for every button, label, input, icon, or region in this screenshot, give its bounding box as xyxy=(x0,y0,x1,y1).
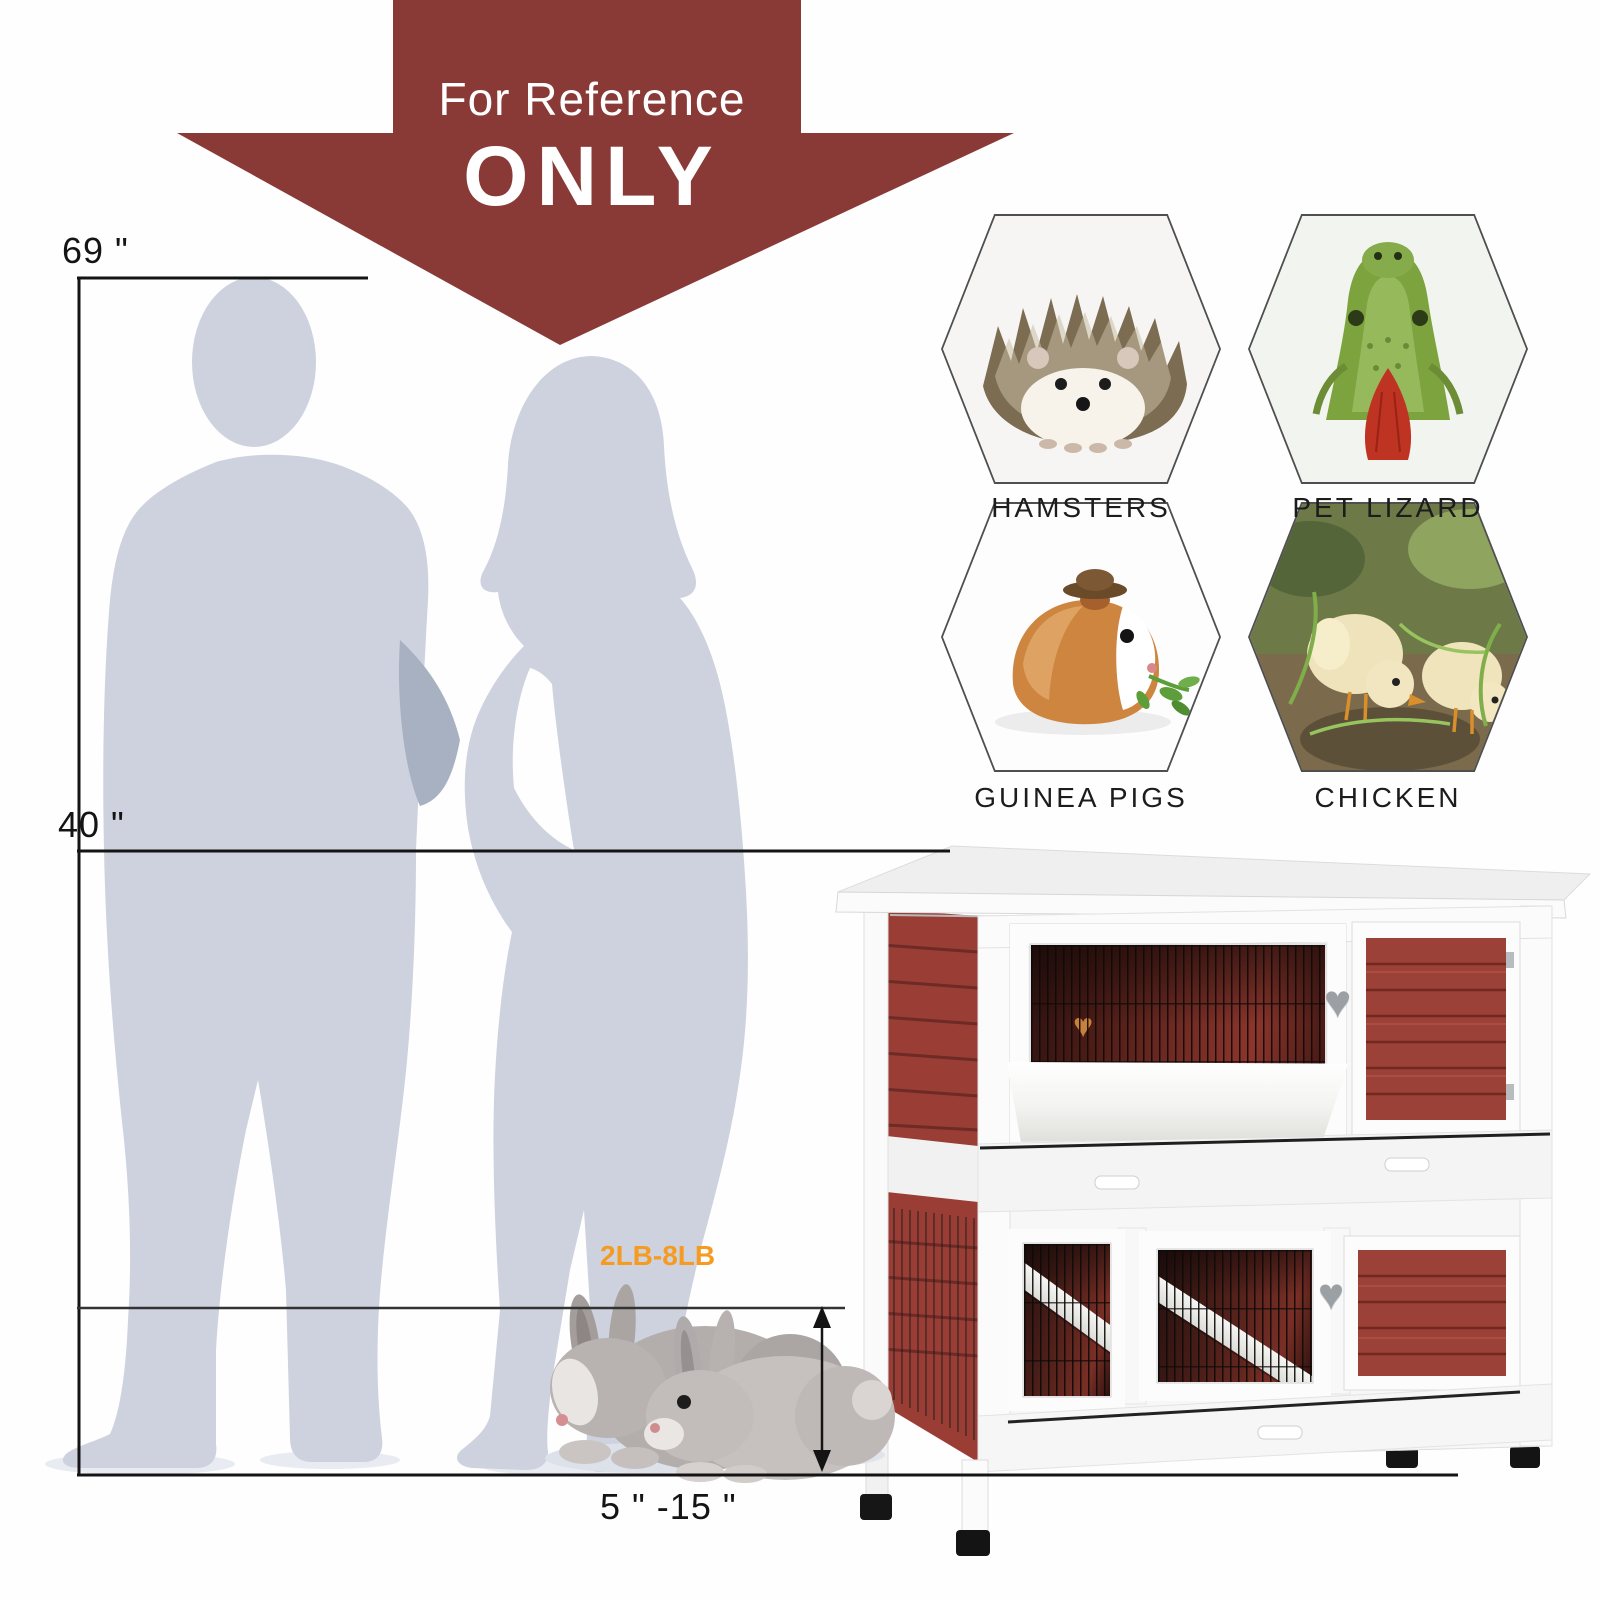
upper-right-door xyxy=(1352,922,1520,1136)
upper-heart-handle-icon: ♥ xyxy=(1324,974,1351,1028)
hex-guinea-pigs xyxy=(941,502,1221,772)
lower-heart-handle-icon: ♥ xyxy=(1318,1270,1344,1320)
feeding-trough xyxy=(1000,1062,1348,1142)
label-pet-lizard: PET LIZARD xyxy=(1292,492,1483,524)
lower-center-cage-interior xyxy=(1158,1250,1312,1382)
label-hamsters: HAMSTERS xyxy=(991,492,1171,524)
hex-pet-lizard xyxy=(1248,214,1528,484)
hedgehog-image xyxy=(943,216,1219,482)
reference-size-infographic: For Reference ONLY 69 " 40 " 2LB-8LB 5 "… xyxy=(0,0,1600,1600)
man-silhouette xyxy=(63,277,429,1468)
rabbit-height-label: 5 " -15 " xyxy=(600,1486,737,1528)
lower-center-mesh xyxy=(1158,1250,1312,1382)
banner-line-1: For Reference xyxy=(438,72,745,126)
rabbit-weight-label: 2LB-8LB xyxy=(600,1240,715,1272)
hutch-height-label: 40 " xyxy=(58,804,125,846)
banner-line-2: ONLY xyxy=(463,128,721,225)
arrowhead-up xyxy=(813,1306,831,1328)
lower-left-mesh xyxy=(1024,1244,1110,1396)
guinea-pig-image xyxy=(943,504,1219,770)
person-height-label: 69 " xyxy=(62,230,129,272)
lizard-image xyxy=(1250,216,1526,482)
chicks-image xyxy=(1250,504,1526,770)
hutch-left-side xyxy=(864,906,978,1462)
hex-hamsters xyxy=(941,214,1221,484)
lower-left-cage-interior xyxy=(1024,1244,1110,1396)
label-chicken: CHICKEN xyxy=(1314,782,1461,814)
label-guinea-pigs: GUINEA PIGS xyxy=(974,782,1188,814)
lower-right-door xyxy=(1344,1236,1520,1390)
people-silhouettes xyxy=(45,277,748,1477)
woman-silhouette xyxy=(457,356,748,1472)
hex-chicken xyxy=(1248,502,1528,772)
